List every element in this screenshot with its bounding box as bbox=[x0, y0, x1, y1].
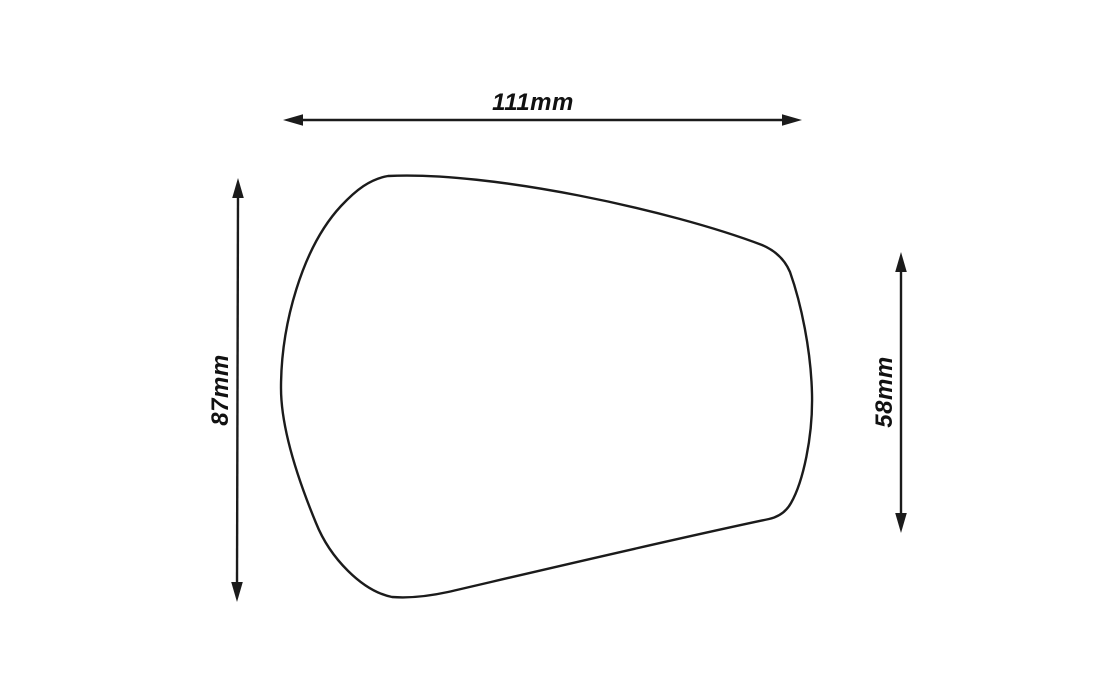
arrowhead-down-icon bbox=[895, 513, 907, 533]
mirror-glass-dimension-diagram: 111mm 87mm 58mm bbox=[0, 0, 1119, 689]
width-dimension-label: 111mm bbox=[492, 89, 574, 116]
arrowhead-up-icon bbox=[895, 252, 907, 272]
height-right-dimension: 58mm bbox=[871, 252, 907, 533]
height-left-dimension-label: 87mm bbox=[207, 354, 234, 425]
height-left-dimension: 87mm bbox=[207, 178, 244, 602]
height-right-dimension-label: 58mm bbox=[871, 356, 898, 427]
diagram-canvas: 111mm 87mm 58mm bbox=[0, 0, 1119, 689]
width-dimension: 111mm bbox=[283, 89, 802, 126]
arrowhead-left-icon bbox=[283, 114, 303, 126]
mirror-glass-outline bbox=[281, 176, 812, 598]
arrowhead-right-icon bbox=[782, 114, 802, 126]
height-left-dimension-line bbox=[237, 195, 238, 585]
arrowhead-up-icon bbox=[232, 178, 244, 198]
arrowhead-down-icon bbox=[231, 582, 243, 602]
